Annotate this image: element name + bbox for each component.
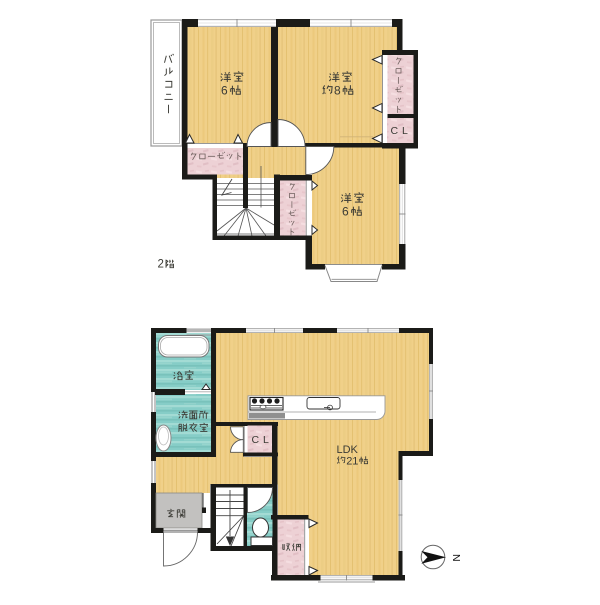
svg-text:N: N — [450, 554, 462, 562]
svg-text:LDK: LDK — [337, 444, 359, 456]
svg-text:21: 21 — [346, 455, 358, 467]
svg-text:8: 8 — [334, 84, 341, 98]
svg-text:C: C — [252, 434, 260, 446]
svg-text:C: C — [391, 125, 399, 137]
svg-text:2: 2 — [158, 259, 164, 271]
svg-text:L: L — [402, 125, 408, 137]
svg-text:6: 6 — [221, 84, 228, 98]
svg-text:6: 6 — [342, 205, 349, 219]
svg-text:L: L — [263, 434, 269, 446]
